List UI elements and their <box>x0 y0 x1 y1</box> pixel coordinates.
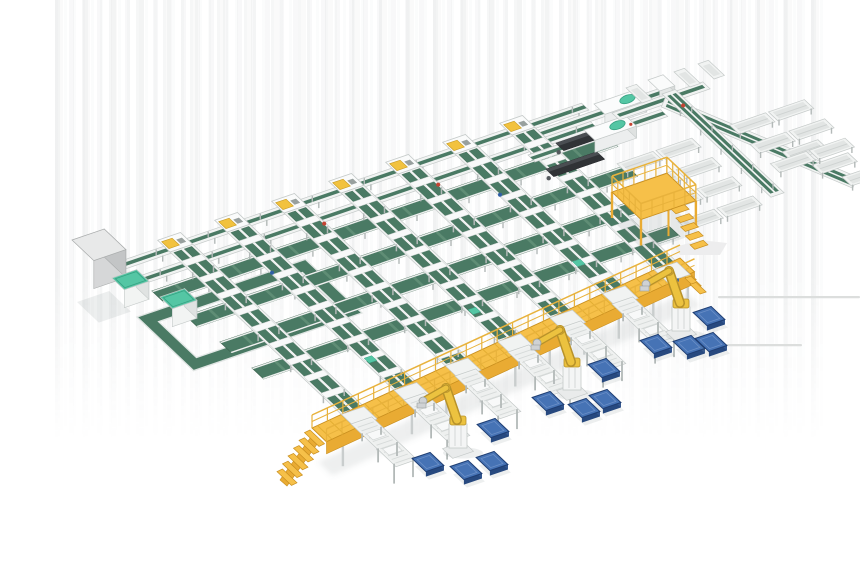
robot-gripper <box>640 286 649 291</box>
dot <box>498 193 502 197</box>
robot-pedestal <box>672 307 690 331</box>
robot-gripper <box>531 345 540 350</box>
dot <box>322 222 326 226</box>
pallet <box>477 418 512 445</box>
robot-pedestal <box>449 424 467 448</box>
sorting-palletizing-system-illustration <box>0 0 860 580</box>
pallet <box>450 460 485 487</box>
factory-render-stage <box>0 0 860 580</box>
robot-gripper <box>417 403 426 408</box>
pallet <box>412 452 447 479</box>
elevated-walkway <box>277 245 706 486</box>
floor-line <box>718 296 860 298</box>
pallet <box>693 306 728 333</box>
dot <box>270 271 274 275</box>
dot <box>681 104 685 108</box>
floor-line <box>718 344 802 346</box>
dot <box>436 183 440 187</box>
walkway-ramp-step <box>690 282 706 294</box>
dot <box>557 150 561 154</box>
robot-pedestal <box>563 366 581 390</box>
shadow <box>77 291 131 323</box>
dot <box>629 123 632 126</box>
dot <box>547 176 551 180</box>
